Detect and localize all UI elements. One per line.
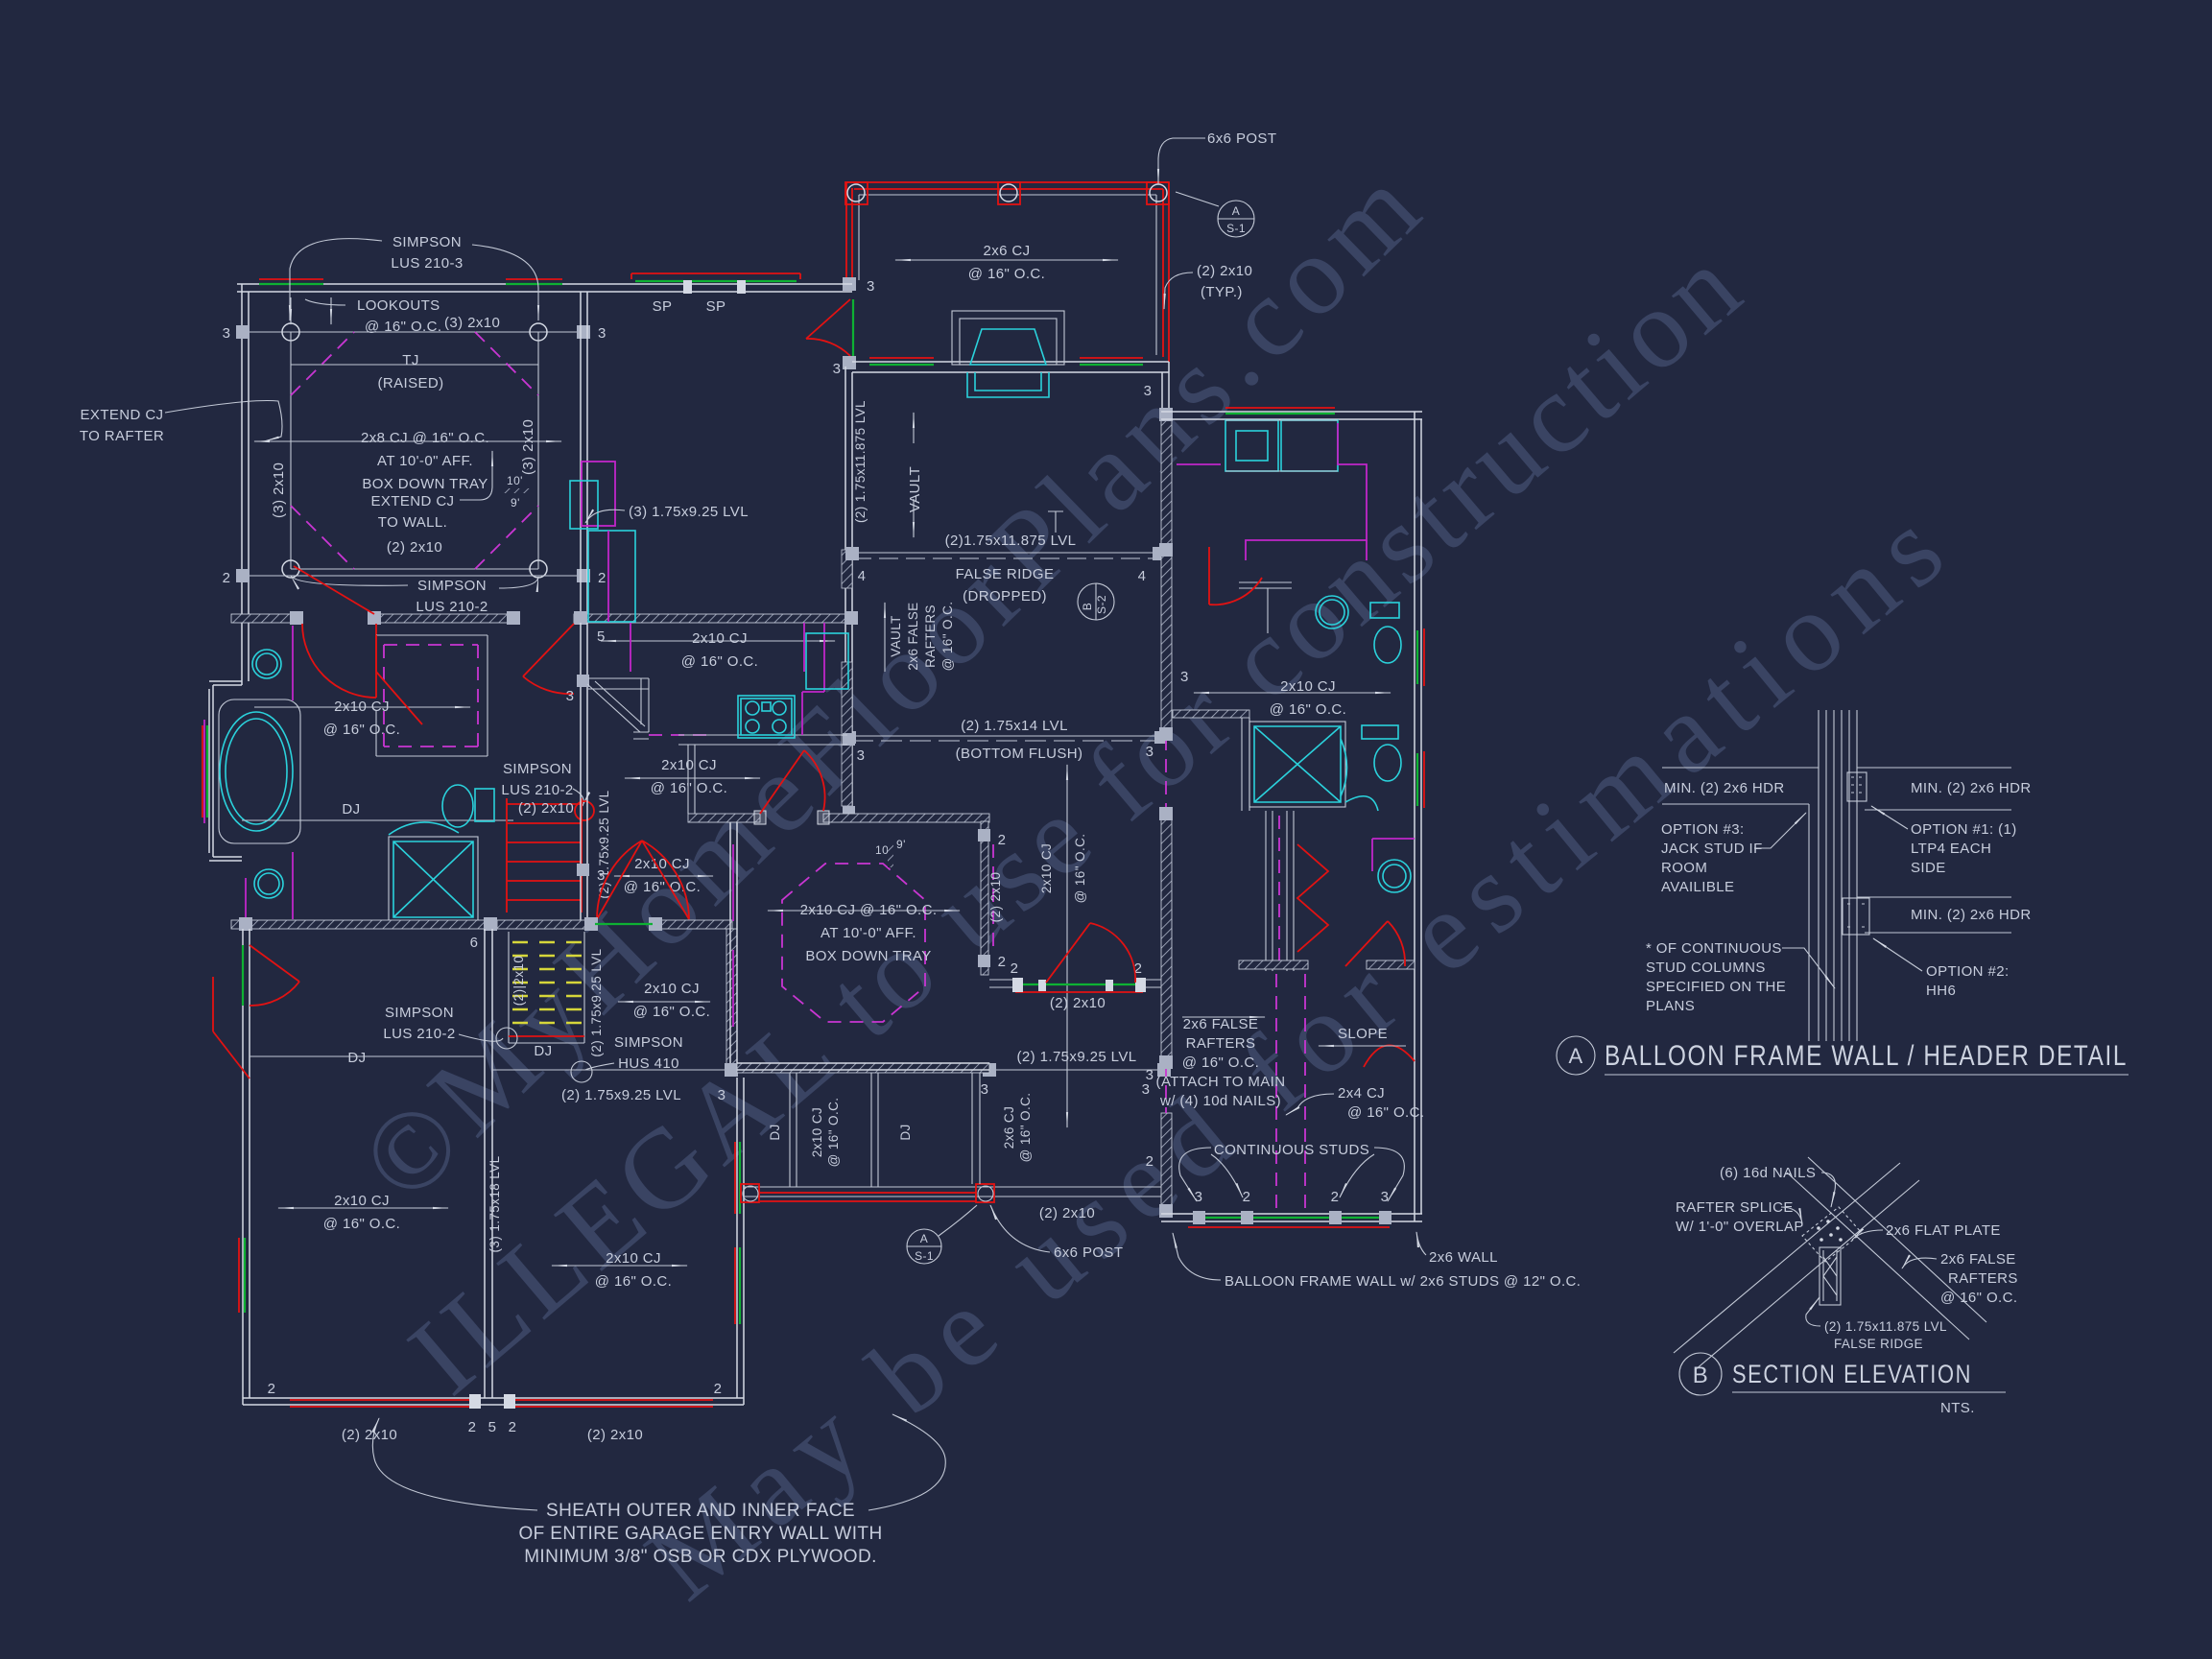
svg-text:SP: SP [653, 298, 673, 315]
svg-text:2: 2 [268, 1381, 276, 1397]
svg-text:3: 3 [1180, 669, 1189, 685]
svg-text:SIMPSON: SIMPSON [503, 761, 572, 777]
svg-text:SPECIFIED ON THE: SPECIFIED ON THE [1646, 979, 1786, 995]
svg-text:2: 2 [1331, 1189, 1340, 1205]
svg-text:A: A [920, 1232, 928, 1245]
svg-text:(2) 2x10: (2) 2x10 [1050, 995, 1106, 1011]
svg-text:EXTEND CJ: EXTEND CJ [371, 493, 455, 510]
svg-text:(2) 1.75x14 LVL: (2) 1.75x14 LVL [961, 718, 1068, 734]
svg-text:3: 3 [1146, 1067, 1154, 1083]
svg-text:3: 3 [1144, 383, 1153, 399]
svg-text:JACK STUD IF: JACK STUD IF [1661, 841, 1763, 857]
svg-text:CONTINUOUS STUDS: CONTINUOUS STUDS [1214, 1142, 1369, 1158]
svg-text:DJ: DJ [342, 801, 360, 818]
svg-text:5: 5 [597, 628, 606, 645]
svg-text:VAULT: VAULT [889, 615, 903, 657]
svg-text:S-1: S-1 [1226, 222, 1246, 235]
svg-text:(ATTACH TO MAIN: (ATTACH TO MAIN [1156, 1074, 1286, 1090]
svg-text:OPTION #1: (1): OPTION #1: (1) [1911, 821, 2017, 838]
svg-text:SLOPE: SLOPE [1338, 1026, 1388, 1042]
svg-text:(2) 2x10: (2) 2x10 [988, 872, 1003, 923]
svg-text:10': 10' [507, 474, 523, 487]
svg-text:(TYP.): (TYP.) [1201, 284, 1243, 300]
svg-text:(2)|2x10: (2)|2x10 [511, 956, 526, 1006]
svg-text:@ 16" O.C.: @ 16" O.C. [595, 1273, 672, 1290]
svg-text:2: 2 [1146, 1153, 1154, 1170]
svg-text:(RAISED): (RAISED) [377, 375, 443, 391]
svg-text:MIN. (2) 2x6 HDR: MIN. (2) 2x6 HDR [1911, 780, 2032, 796]
svg-text:@ 16" O.C.: @ 16" O.C. [323, 1216, 400, 1232]
svg-text:@ 16" O.C.: @ 16" O.C. [323, 722, 400, 738]
svg-text:2: 2 [714, 1381, 723, 1397]
svg-text:TO WALL.: TO WALL. [378, 514, 447, 531]
svg-text:(2) 2x10: (2) 2x10 [518, 800, 574, 817]
svg-text:ROOM: ROOM [1661, 860, 1707, 876]
svg-text:2x6 FALSE: 2x6 FALSE [906, 602, 920, 670]
svg-text:2x10 CJ: 2x10 CJ [334, 1193, 390, 1209]
svg-text:2x10 CJ: 2x10 CJ [606, 1250, 661, 1267]
svg-text:@ 16" O.C.: @ 16" O.C. [681, 653, 758, 670]
svg-text:SHEATH OUTER AND INNER FACE: SHEATH OUTER AND INNER FACE [546, 1501, 855, 1521]
svg-text:@ 16" O.C.: @ 16" O.C. [940, 602, 955, 672]
svg-text:2: 2 [998, 954, 1007, 970]
svg-text:STUD COLUMNS: STUD COLUMNS [1646, 960, 1766, 976]
svg-text:HH6: HH6 [1926, 983, 1956, 999]
svg-text:RAFTERS: RAFTERS [1948, 1270, 2018, 1287]
svg-text:2x6 FALSE: 2x6 FALSE [1183, 1016, 1259, 1032]
svg-text:SECTION ELEVATION: SECTION ELEVATION [1732, 1360, 1972, 1388]
svg-text:(2) 1.75x11.875 LVL: (2) 1.75x11.875 LVL [853, 400, 868, 523]
svg-text:SIDE: SIDE [1911, 860, 1946, 876]
svg-text:* OF CONTINUOUS: * OF CONTINUOUS [1646, 940, 1782, 957]
svg-text:@ 16" O.C.: @ 16" O.C. [1182, 1055, 1259, 1071]
svg-text:(3) 2x10: (3) 2x10 [444, 315, 500, 331]
svg-text:6x6 POST: 6x6 POST [1054, 1244, 1123, 1261]
svg-text:(3) 2x10: (3) 2x10 [520, 419, 536, 475]
svg-text:LUS 210-2: LUS 210-2 [383, 1026, 455, 1042]
svg-text:SIMPSON: SIMPSON [385, 1005, 454, 1021]
svg-text:3: 3 [1195, 1189, 1203, 1205]
svg-text:(3) 1.75x9.25 LVL: (3) 1.75x9.25 LVL [629, 504, 749, 520]
svg-text:(2)1.75x11.875 LVL: (2)1.75x11.875 LVL [945, 533, 1077, 549]
svg-text:2x6 FLAT PLATE: 2x6 FLAT PLATE [1886, 1222, 2001, 1239]
svg-text:EXTEND CJ: EXTEND CJ [81, 407, 164, 423]
svg-text:TO RAFTER: TO RAFTER [80, 428, 164, 444]
svg-text:RAFTERS: RAFTERS [1186, 1035, 1256, 1052]
svg-text:@ 16" O.C.: @ 16" O.C. [365, 319, 441, 335]
svg-text:2: 2 [598, 570, 607, 586]
svg-text:2: 2 [468, 1419, 477, 1435]
svg-text:BOX DOWN TRAY: BOX DOWN TRAY [805, 948, 931, 964]
svg-text:W/ 1'-0" OVERLAP: W/ 1'-0" OVERLAP [1676, 1219, 1804, 1235]
svg-text:FALSE RIDGE: FALSE RIDGE [1834, 1337, 1923, 1351]
svg-text:9': 9' [511, 496, 520, 510]
svg-text:B: B [1081, 603, 1094, 610]
svg-text:(6) 16d NAILS: (6) 16d NAILS [1720, 1165, 1816, 1181]
svg-text:BOX DOWN TRAY: BOX DOWN TRAY [362, 476, 488, 492]
svg-text:(2) 1.75x9.25 LVL: (2) 1.75x9.25 LVL [561, 1087, 681, 1103]
svg-text:2x6 WALL: 2x6 WALL [1429, 1249, 1498, 1266]
svg-text:BALLOON FRAME WALL w/ 2x6 STUD: BALLOON FRAME WALL w/ 2x6 STUDS @ 12" O.… [1225, 1273, 1581, 1290]
svg-text:NTS.: NTS. [1940, 1400, 1975, 1416]
svg-text:3: 3 [566, 688, 575, 704]
svg-text:2: 2 [1011, 960, 1019, 977]
svg-text:(3) 1.75x18 LVL: (3) 1.75x18 LVL [488, 1155, 502, 1252]
svg-text:2x8 CJ @ 16" O.C.: 2x8 CJ @ 16" O.C. [361, 430, 489, 446]
svg-text:S-2: S-2 [1095, 595, 1108, 614]
svg-text:2x10 CJ: 2x10 CJ [1039, 843, 1054, 893]
svg-text:(BOTTOM FLUSH): (BOTTOM FLUSH) [956, 746, 1083, 762]
svg-text:3: 3 [223, 325, 231, 342]
svg-text:3: 3 [867, 278, 875, 295]
svg-text:A: A [1568, 1044, 1582, 1068]
svg-text:DJ: DJ [898, 1124, 913, 1140]
svg-text:(2) 1.75x9.25 LVL: (2) 1.75x9.25 LVL [589, 948, 604, 1056]
svg-text:FALSE RIDGE: FALSE RIDGE [956, 566, 1055, 582]
svg-text:@ 16" O.C.: @ 16" O.C. [1347, 1104, 1424, 1121]
svg-text:B: B [1693, 1363, 1708, 1388]
svg-text:AT 10'-0" AFF.: AT 10'-0" AFF. [821, 925, 916, 941]
svg-text:SIMPSON: SIMPSON [392, 234, 462, 250]
svg-text:OF ENTIRE GARAGE ENTRY WALL WI: OF ENTIRE GARAGE ENTRY WALL WITH [518, 1524, 882, 1544]
svg-text:3: 3 [718, 1087, 726, 1103]
svg-text:SP: SP [706, 298, 726, 315]
svg-text:2x6 CJ: 2x6 CJ [983, 243, 1030, 259]
svg-text:3: 3 [1381, 1189, 1390, 1205]
svg-text:OPTION #3:: OPTION #3: [1661, 821, 1745, 838]
svg-text:@ 16" O.C.: @ 16" O.C. [968, 266, 1045, 282]
svg-text:LTP4 EACH: LTP4 EACH [1911, 841, 1991, 857]
svg-text:S-1: S-1 [915, 1249, 934, 1263]
svg-text:(2) 2x10: (2) 2x10 [587, 1427, 643, 1443]
svg-text:3: 3 [598, 325, 607, 342]
svg-text:(2) 2x10: (2) 2x10 [1197, 263, 1252, 279]
svg-text:3: 3 [1142, 1081, 1151, 1098]
svg-text:2x10 CJ: 2x10 CJ [692, 630, 748, 647]
svg-text:@ 16" O.C.: @ 16" O.C. [1018, 1093, 1033, 1163]
svg-text:LUS 210-2: LUS 210-2 [416, 599, 488, 615]
svg-text:2x4 CJ: 2x4 CJ [1338, 1085, 1385, 1102]
svg-text:LUS 210-3: LUS 210-3 [391, 255, 463, 272]
svg-text:(2) 2x10: (2) 2x10 [1039, 1205, 1095, 1221]
svg-text:3: 3 [857, 747, 866, 764]
svg-text:2x6 CJ: 2x6 CJ [1002, 1106, 1016, 1149]
svg-text:2: 2 [223, 570, 231, 586]
svg-text:(DROPPED): (DROPPED) [963, 588, 1047, 604]
svg-text:3: 3 [833, 361, 842, 377]
svg-text:(2) 1.75x11.875 LVL: (2) 1.75x11.875 LVL [1824, 1319, 1947, 1334]
svg-text:DJ: DJ [347, 1050, 366, 1066]
svg-text:(2) 1.75x9.25 LVL: (2) 1.75x9.25 LVL [1017, 1049, 1137, 1065]
svg-text:3: 3 [1146, 744, 1154, 760]
svg-text:RAFTERS: RAFTERS [923, 604, 938, 668]
svg-text:2: 2 [998, 832, 1007, 848]
svg-text:RAFTER SPLICE: RAFTER SPLICE [1676, 1199, 1794, 1216]
svg-text:6: 6 [470, 935, 479, 951]
svg-text:2x6 FALSE: 2x6 FALSE [1940, 1251, 2016, 1268]
svg-text:2x10 CJ: 2x10 CJ [810, 1107, 824, 1157]
svg-text:DJ: DJ [534, 1043, 552, 1059]
svg-text:AVAILIBLE: AVAILIBLE [1661, 879, 1734, 895]
svg-text:(2) 2x10: (2) 2x10 [342, 1427, 397, 1443]
svg-text:BALLOON FRAME WALL / HEADER DE: BALLOON FRAME WALL / HEADER DETAIL [1605, 1040, 2128, 1072]
svg-text:4: 4 [858, 568, 867, 584]
svg-text:2: 2 [509, 1419, 517, 1435]
svg-text:LOOKOUTS: LOOKOUTS [357, 297, 440, 314]
svg-text:2x10 CJ: 2x10 CJ [634, 856, 690, 872]
svg-text:MIN. (2) 2x6 HDR: MIN. (2) 2x6 HDR [1911, 907, 2032, 923]
svg-text:SIMPSON: SIMPSON [417, 578, 487, 594]
svg-text:@ 16" O.C.: @ 16" O.C. [826, 1098, 841, 1168]
svg-text:PLANS: PLANS [1646, 998, 1695, 1014]
svg-text:(2) 2x10: (2) 2x10 [387, 539, 442, 556]
svg-text:5: 5 [488, 1419, 497, 1435]
svg-text:@ 16" O.C.: @ 16" O.C. [1270, 701, 1346, 718]
svg-text:2x10 CJ: 2x10 CJ [644, 981, 700, 997]
svg-text:VAULT: VAULT [907, 466, 923, 512]
svg-text:A: A [1232, 204, 1240, 218]
svg-text:w/ (4) 10d NAILS): w/ (4) 10d NAILS) [1159, 1093, 1281, 1109]
svg-text:SIMPSON: SIMPSON [614, 1034, 683, 1051]
svg-text:MIN. (2) 2x6 HDR: MIN. (2) 2x6 HDR [1664, 780, 1785, 796]
svg-text:@ 16" O.C.: @ 16" O.C. [651, 780, 727, 796]
svg-text:LUS 210-2: LUS 210-2 [501, 782, 573, 798]
svg-text:MINIMUM 3/8" OSB OR CDX PLYWOO: MINIMUM 3/8" OSB OR CDX PLYWOOD. [524, 1547, 877, 1567]
svg-text:3: 3 [981, 1081, 989, 1098]
svg-text:AT 10'-0" AFF.: AT 10'-0" AFF. [377, 453, 473, 469]
svg-text:@ 16" O.C.: @ 16" O.C. [1073, 834, 1087, 904]
svg-text:(3) 2x10: (3) 2x10 [271, 462, 287, 518]
svg-text:DJ: DJ [768, 1124, 782, 1140]
svg-text:2x10 CJ: 2x10 CJ [661, 757, 717, 773]
svg-text:@ 16" O.C.: @ 16" O.C. [1940, 1290, 2017, 1306]
svg-text:@ 16" O.C.: @ 16" O.C. [624, 879, 701, 895]
svg-text:9': 9' [896, 838, 906, 851]
svg-text:TJ: TJ [402, 352, 418, 368]
svg-text:6x6 POST: 6x6 POST [1207, 130, 1276, 147]
svg-text:OPTION #2:: OPTION #2: [1926, 963, 2010, 980]
svg-text:@ 16" O.C.: @ 16" O.C. [633, 1004, 710, 1020]
svg-text:4: 4 [1138, 568, 1147, 584]
svg-text:2: 2 [1243, 1189, 1251, 1205]
